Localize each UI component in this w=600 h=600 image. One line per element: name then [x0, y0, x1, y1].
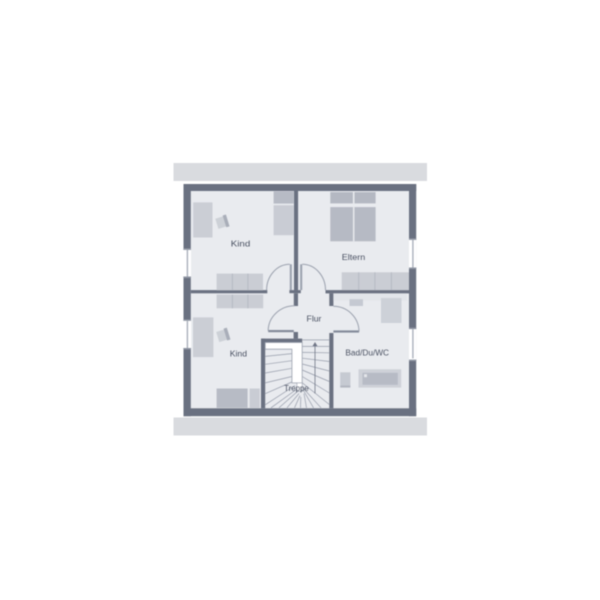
svg-text:Kind: Kind — [231, 238, 251, 248]
svg-text:Flur: Flur — [307, 314, 322, 324]
svg-text:Treppe: Treppe — [284, 383, 309, 393]
svg-text:Eltern: Eltern — [342, 252, 366, 262]
svg-text:Kind: Kind — [230, 349, 247, 359]
svg-text:Bad/Du/WC: Bad/Du/WC — [345, 347, 389, 357]
